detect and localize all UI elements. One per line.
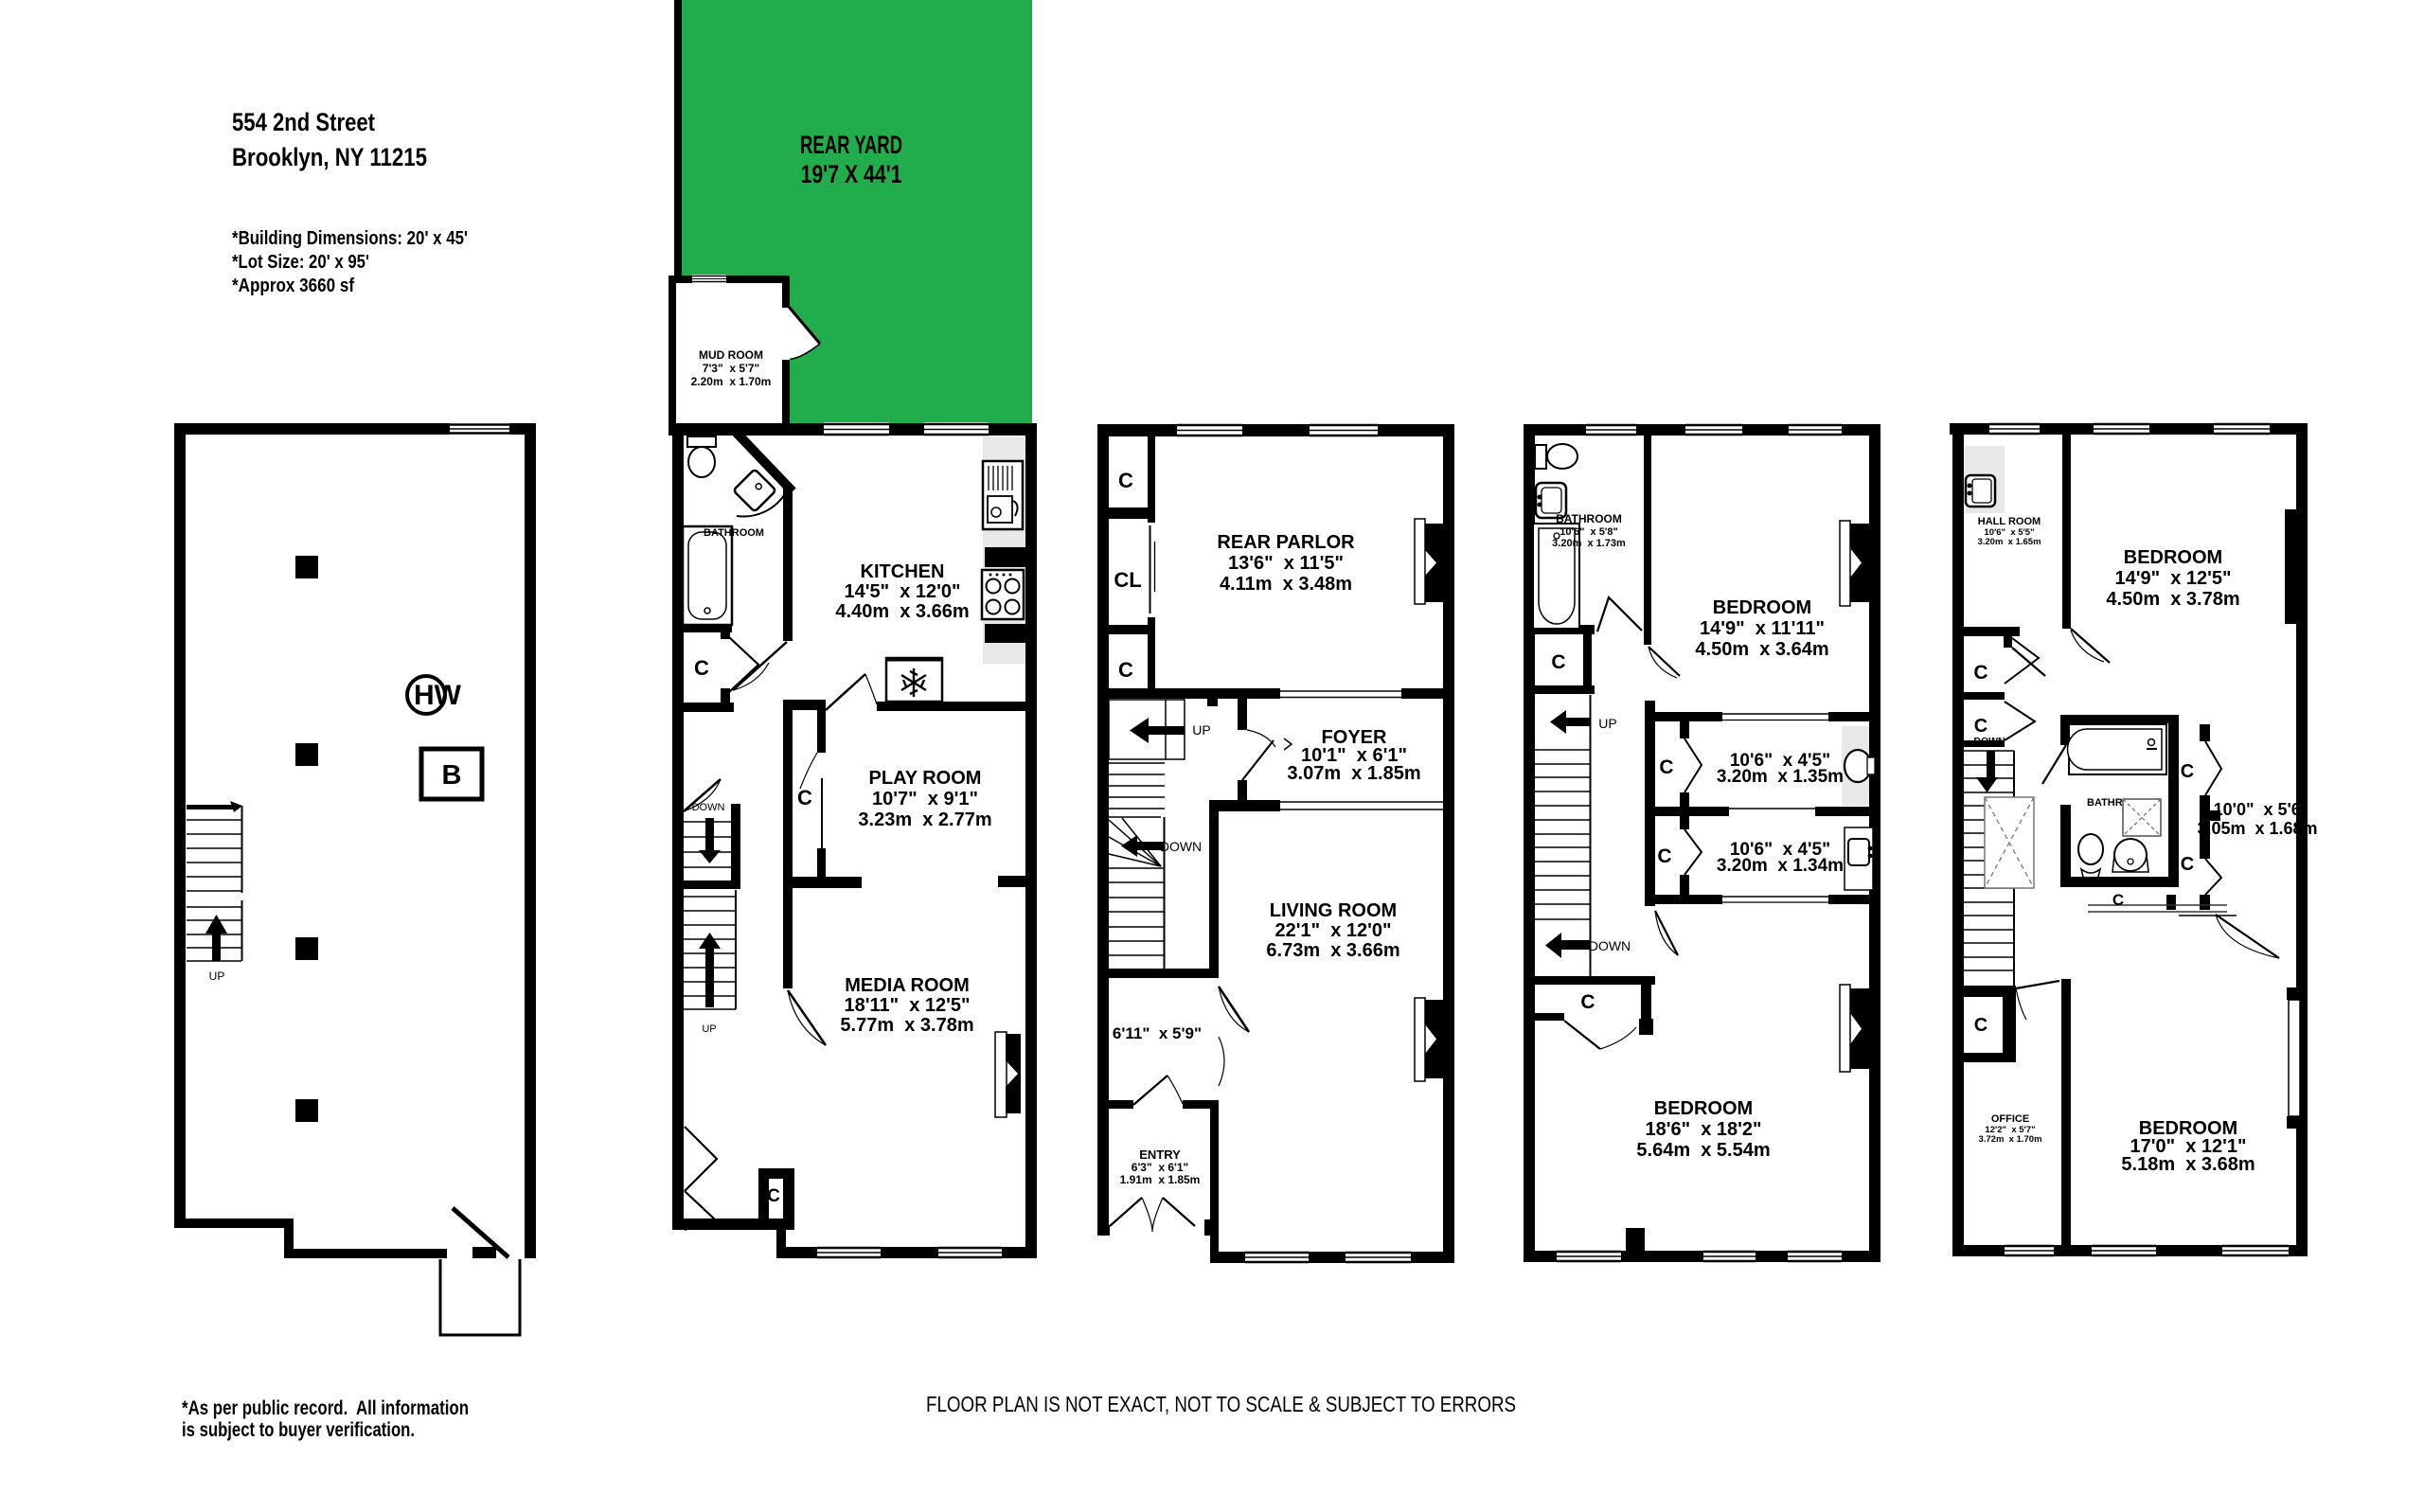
svg-text:19'7 X 44'1: 19'7 X 44'1: [801, 160, 902, 188]
svg-text:UP: UP: [1192, 722, 1210, 738]
svg-text:REAR YARD: REAR YARD: [800, 131, 902, 159]
svg-text:C: C: [1118, 658, 1133, 682]
svg-text:UP: UP: [702, 1023, 716, 1035]
svg-text:554 2nd Street: 554 2nd Street: [232, 108, 375, 136]
svg-text:BATHROOM: BATHROOM: [704, 527, 764, 539]
svg-text:C: C: [1657, 845, 1671, 867]
svg-text:6.73m x 3.66m: 6.73m x 3.66m: [1266, 940, 1399, 961]
svg-text:DOWN: DOWN: [1160, 839, 1202, 854]
svg-text:*As per public record. All in: *As per public record. All information: [182, 1397, 469, 1419]
svg-text:KITCHEN: KITCHEN: [861, 561, 945, 582]
svg-text:3.20m x 1.35m: 3.20m x 1.35m: [1717, 767, 1844, 787]
svg-text:10'0" x 5'6": 10'0" x 5'6": [2214, 800, 2309, 819]
svg-text:*Building Dimensions: 20' x 45: *Building Dimensions: 20' x 45': [232, 228, 468, 249]
svg-text:10'7" x 9'1": 10'7" x 9'1": [872, 789, 978, 809]
svg-text:C: C: [2181, 761, 2194, 782]
svg-text:C: C: [2181, 854, 2194, 875]
svg-text:DOWN: DOWN: [1589, 938, 1631, 953]
svg-text:3.72m x 1.70m: 3.72m x 1.70m: [1978, 1134, 2041, 1145]
svg-text:C: C: [797, 786, 812, 809]
svg-text:BEDROOM: BEDROOM: [2124, 547, 2222, 568]
svg-text:MUD ROOM: MUD ROOM: [699, 348, 763, 362]
svg-text:18'6" x 18'2": 18'6" x 18'2": [1645, 1119, 1761, 1140]
svg-text:UP: UP: [209, 969, 225, 983]
svg-text:C: C: [767, 1186, 780, 1206]
svg-text:3.20m x 1.65m: 3.20m x 1.65m: [1977, 537, 2041, 547]
svg-text:10'6" x 5'8": 10'6" x 5'8": [1560, 526, 1618, 538]
svg-text:7'3" x 5'7": 7'3" x 5'7": [703, 362, 759, 375]
svg-text:14'5" x 12'0": 14'5" x 12'0": [844, 581, 960, 602]
svg-text:*Approx 3660 sf: *Approx 3660 sf: [232, 276, 354, 296]
svg-text:6'11" x 5'9": 6'11" x 5'9": [1113, 1024, 1202, 1042]
svg-text:14'9" x 12'5": 14'9" x 12'5": [2114, 568, 2231, 589]
svg-text:C: C: [1659, 756, 1673, 778]
svg-text:1.91m x 1.85m: 1.91m x 1.85m: [1120, 1173, 1201, 1186]
svg-text:4.50m x 3.78m: 4.50m x 3.78m: [2106, 589, 2239, 610]
svg-text:4.40m x 3.66m: 4.40m x 3.66m: [835, 601, 969, 622]
svg-text:C: C: [1974, 1015, 1987, 1036]
svg-text:C: C: [1973, 662, 1987, 684]
svg-text:22'1" x 12'0": 22'1" x 12'0": [1274, 920, 1391, 941]
svg-text:2.20m x 1.70m: 2.20m x 1.70m: [691, 375, 772, 388]
svg-text:5.77m x 3.78m: 5.77m x 3.78m: [840, 1015, 973, 1036]
svg-text:HW: HW: [414, 680, 462, 711]
svg-text:3.07m x 1.85m: 3.07m x 1.85m: [1287, 763, 1420, 784]
svg-text:Brooklyn, NY 11215: Brooklyn, NY 11215: [232, 143, 427, 171]
svg-text:ENTRY: ENTRY: [1139, 1147, 1181, 1162]
svg-text:MEDIA ROOM: MEDIA ROOM: [845, 975, 969, 996]
svg-text:6'3" x 6'1": 6'3" x 6'1": [1132, 1161, 1188, 1174]
svg-text:REAR PARLOR: REAR PARLOR: [1217, 532, 1355, 553]
svg-text:C: C: [1118, 469, 1133, 492]
svg-text:4.50m x 3.64m: 4.50m x 3.64m: [1695, 639, 1828, 660]
svg-text:is subject to buyer verificati: is subject to buyer verification.: [182, 1419, 415, 1441]
svg-text:14'9" x 11'11": 14'9" x 11'11": [1700, 618, 1825, 639]
svg-text:4.11m x 3.48m: 4.11m x 3.48m: [1220, 574, 1352, 595]
svg-text:B: B: [442, 760, 462, 791]
svg-text:5.64m x 5.54m: 5.64m x 5.54m: [1636, 1140, 1770, 1161]
svg-text:BEDROOM: BEDROOM: [1713, 597, 1811, 618]
svg-text:LIVING ROOM: LIVING ROOM: [1270, 900, 1397, 921]
svg-text:OFFICE: OFFICE: [1991, 1113, 2029, 1125]
svg-text:UP: UP: [1598, 716, 1616, 731]
svg-text:FLOOR PLAN IS NOT EXACT, NOT T: FLOOR PLAN IS NOT EXACT, NOT TO SCALE & …: [926, 1392, 1516, 1416]
svg-text:PLAY ROOM: PLAY ROOM: [869, 768, 982, 789]
svg-text:BEDROOM: BEDROOM: [1654, 1098, 1753, 1119]
svg-text:BATHROOM: BATHROOM: [1556, 512, 1622, 525]
svg-text:CL: CL: [1114, 568, 1141, 592]
svg-text:DOWN: DOWN: [1973, 736, 2005, 747]
svg-text:C: C: [1551, 651, 1565, 673]
svg-text:C: C: [2112, 891, 2124, 909]
svg-text:*Lot Size: 20' x 95': *Lot Size: 20' x 95': [232, 252, 369, 273]
svg-text:HALL ROOM: HALL ROOM: [1978, 516, 2041, 527]
svg-text:C: C: [1974, 716, 1987, 737]
svg-text:C: C: [1580, 991, 1595, 1013]
svg-text:3.20m x 1.34m: 3.20m x 1.34m: [1717, 856, 1844, 876]
svg-text:3.20m x 1.73m: 3.20m x 1.73m: [1552, 538, 1626, 549]
svg-text:DOWN: DOWN: [692, 802, 725, 813]
svg-text:18'11" x 12'5": 18'11" x 12'5": [844, 995, 970, 1016]
svg-text:5.18m x 3.68m: 5.18m x 3.68m: [2121, 1154, 2255, 1175]
svg-text:13'6" x 11'5": 13'6" x 11'5": [1228, 553, 1344, 574]
svg-text:3.23m x 2.77m: 3.23m x 2.77m: [858, 809, 991, 830]
svg-text:C: C: [694, 656, 709, 680]
